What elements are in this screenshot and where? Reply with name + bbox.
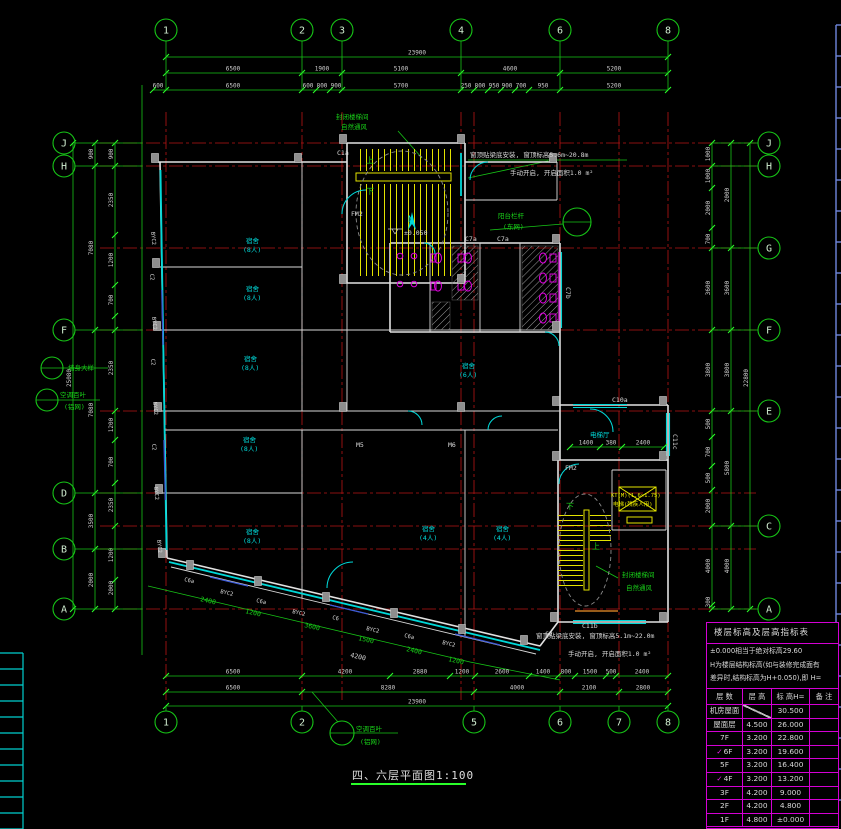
dim-label: 7080 [88,402,95,417]
svg-text:F: F [61,325,67,336]
grid-bubble-F: F [712,319,780,341]
dim-chain: 9002350120070023501200700235012002000 [108,140,118,612]
detail-callout-circle [330,721,354,745]
table-row: ✓6F3.20019.600 [707,746,838,760]
annotation-text: 宿舍 [496,524,510,533]
annotation-text: C2 [545,630,553,638]
col-header-height: 层 高 [743,689,772,705]
annotation-text: C11b [582,622,598,630]
grid-bubble-3: 3 [331,19,353,90]
dim-label: 5100 [394,66,409,73]
dim-label: 2000 [88,572,95,587]
drawing-title: 四、六层平面图 [352,769,436,782]
dim-label: 1200 [455,669,470,676]
table-cell: 3F [707,787,743,801]
annotation-text: (铝网) [64,402,85,411]
column [458,403,465,412]
column [521,636,528,645]
table-cell [743,705,772,719]
grid-bubble-J: J [712,132,780,154]
grid-bubble-6: 6 [549,706,571,733]
dim-label: 300 [705,596,712,607]
table-row: ✓4F3.20013.200 [707,773,838,787]
grid-bubble-6: 6 [549,19,571,90]
elevation-table: 楼层标高及层高指标表 ±0.000相当于绝对标高29.60 H为楼层结构标高(如… [706,622,839,829]
dim-label: 600 [303,83,314,90]
annotation-text: 封闭楼梯间 [622,570,655,579]
dim-label: 7080 [88,240,95,255]
dim-label: 4200 [338,669,353,676]
dim-label: 1000 [705,146,712,161]
dim-label: 6500 [226,669,241,676]
annotation-text: C2 [149,359,156,366]
note-line: H为楼层结构标高(如与装修完成面有 [710,659,838,673]
dim-chain: 23900 [163,50,671,61]
table-cell: 3.200 [743,773,772,787]
dim-label: 950 [538,83,549,90]
svg-text:6: 6 [557,25,563,36]
annotation-text: ±0.050 [404,229,428,237]
annotation-text: C2 [148,274,155,281]
annotation-text: (东网) [503,222,524,231]
stair-top [356,149,451,276]
grid-bubble-H: H [53,155,142,177]
table-row: 1F4.800±0.000 [707,814,838,828]
grid-bubble-H: H [712,155,780,177]
annotation-text: 自然通风 [626,583,653,592]
dim-label: 250 [461,83,472,90]
column [458,135,465,144]
annotation-text: 封闭楼梯间 [336,112,369,121]
column [323,593,330,602]
col-header-floor: 层 数 [707,689,743,705]
grid-bubble-1: 1 [155,706,177,733]
annotation-text: 1500 [358,634,375,645]
dim-label: 800 [317,83,328,90]
dim-label: 8280 [381,685,396,692]
table-row: 2F4.2004.800 [707,800,838,814]
dim-label: 2400 [635,669,650,676]
annotation-text: 阳台栏杆 [498,211,525,220]
detail-callout-circle [41,357,63,379]
annotation-text: 手动开启, 开启面积1.0 m² [568,649,651,658]
detail-callout-circle [36,389,58,411]
annotation-text: (8人) [241,364,259,372]
column [660,397,667,406]
table-cell: 16.400 [772,759,810,773]
table-cell: 4.200 [743,800,772,814]
dim-label: 5200 [607,66,622,73]
annotation-text: (铝网) [360,737,381,746]
table-cell: 5F [707,759,743,773]
dim-label: 6500 [226,685,241,692]
svg-text:5: 5 [471,717,477,728]
grid-bubble-7: 7 [608,706,630,733]
grid-bubble-D: D [53,482,142,504]
annotation-text: 下 [366,187,374,196]
table-cell: 4.800 [772,800,810,814]
annotation-text: M5 [356,441,364,449]
dim-label: 3500 [88,513,95,528]
annotation-text: 宿舍 [462,361,476,370]
dim-label: 380 [606,440,617,447]
drawing-scale: 1:100 [436,769,474,782]
annotation-text: C11c [671,434,679,450]
svg-text:6: 6 [557,717,563,728]
dim-label: 1900 [315,66,330,73]
column [391,609,398,618]
annotation-text: C7a [497,235,509,243]
svg-text:A: A [61,604,67,615]
annotation-text: (8人) [243,246,261,254]
table-cell: 4.800 [743,814,772,828]
detail-callout-circle [563,208,591,236]
annotation-text: 空调百叶 [60,390,87,399]
annotation-text: 3600 [304,621,321,632]
dim-label: 1200 [108,547,115,562]
table-cell: ✓4F [707,773,743,787]
dim-label: 900 [331,83,342,90]
dim-chain: 14003802400 [567,440,667,451]
dim-label: 800 [475,83,486,90]
svg-text:1: 1 [163,25,169,36]
table-cell: 机房屋面 [707,705,743,719]
grid-bubble-A: A [712,598,780,620]
dim-label: 2000 [108,580,115,595]
table-cell: 4.200 [743,787,772,801]
dim-label: 2100 [582,685,597,692]
column [660,452,667,461]
table-cell: 13.200 [772,773,810,787]
svg-text:D: D [61,488,67,499]
table-cell: 26.000 [772,719,810,733]
grid-bubble-2: 2 [291,706,313,733]
annotation-text: 4200 [350,651,367,662]
dim-chain: 20003600380058004000 [724,140,734,612]
table-cell: 3.200 [743,746,772,760]
svg-text:2: 2 [299,25,305,36]
dim-label: 2350 [108,192,115,207]
dim-label: 3800 [705,362,712,377]
annotation-text: 空调百叶 [356,724,383,733]
dim-label: 23900 [408,699,426,706]
annotation-text: 上 [366,156,374,165]
column [255,577,262,586]
annotation-text: C2 [150,444,157,451]
annotation-text: 宿舍 [246,527,260,536]
annotation-text: 宿舍 [244,354,258,363]
annotation-text: (8人) [243,537,261,545]
annotation-text: 宿舍 [246,284,260,293]
grid-bubble-E: E [712,400,780,422]
elevation-table-title: 楼层标高及层高指标表 [707,623,838,644]
check-icon: ✓ [716,747,722,756]
dim-label: 2400 [636,440,651,447]
dim-chain: 65001900510046005200 [163,66,671,77]
svg-text:B: B [61,544,67,555]
dim-label: 2600 [495,669,510,676]
dim-label: 4000 [705,558,712,573]
table-row: 5F3.20016.400 [707,759,838,773]
dim-label: 2000 [705,200,712,215]
elevation-table-body: 机房屋面30.500屋面层4.50026.0007F3.20022.800✓6F… [707,705,838,827]
dim-label: 1200 [108,417,115,432]
dim-label: 5700 [394,83,409,90]
table-cell: 22.800 [772,732,810,746]
dim-label: 3600 [724,280,731,295]
dim-label: 1400 [579,440,594,447]
grid-bubble-A: A [53,598,142,620]
annotation-text: 2400 [406,645,423,656]
svg-text:A: A [766,604,772,615]
col-header-elev: 标 高H= [772,689,810,705]
svg-text:4: 4 [458,25,464,36]
annotation-text: BYC2 [292,609,306,618]
annotation-text: BYC2 [442,640,456,649]
annotation-text: 电梯(残疾人用) [613,500,653,508]
annotation-text: C6 [332,615,340,622]
dim-label: 1000 [705,168,712,183]
dim-label: 900 [108,148,115,159]
cad-viewport: 2390065001900510046005200600650060080090… [0,0,841,829]
svg-text:J: J [766,138,772,149]
grid-bubble-B: B [53,538,142,560]
dim-label: 4600 [503,66,518,73]
table-cell: 9.000 [772,787,810,801]
annotation-text: 宿舍 [246,236,260,245]
annotation-text: 窗顶贴梁底安装, 窗顶标高5.6m~20.8m [470,150,589,159]
grid-bubble-F: F [53,319,142,341]
annotation-text: 墙身大样 [68,363,95,372]
dim-label: 1200 [108,252,115,267]
table-row: 机房屋面30.500 [707,705,838,719]
annotation-text: C6a [256,598,267,606]
table-cell [810,773,838,787]
table-cell [810,746,838,760]
grid-bubble-8: 8 [657,19,679,90]
column [153,259,160,268]
annotation-text: N [408,215,413,225]
dim-label: 22800 [743,369,750,387]
annotation-text: C1a [337,149,349,157]
dim-label: 500 [606,669,617,676]
dim-label: 2000 [724,187,731,202]
svg-text:G: G [766,243,772,254]
annotation-text: KT(M)(1.6×1.75) [611,493,661,499]
grid-bubble-1: 1 [155,19,177,90]
dim-label: 4000 [724,558,731,573]
annotation-text: 下 [566,502,574,511]
table-row: 7F3.20022.800 [707,732,838,746]
dim-chain: 9007080708035002000 [88,140,98,612]
dim-label: 1400 [536,669,551,676]
annotation-text: 自然通风 [341,122,368,131]
svg-text:H: H [61,161,67,172]
note-line: 差异时,结构标高为H+0.050),即 H= [710,672,838,686]
dim-label: 6500 [226,66,241,73]
table-row: 3F4.2009.000 [707,787,838,801]
annotation-text: (4人) [419,534,437,542]
dim-label: 700 [108,294,115,305]
dim-chain: 23900 [163,699,671,710]
dim-label: 950 [489,83,500,90]
table-cell [810,800,838,814]
check-icon: ✓ [716,774,722,783]
dim-chain: 65004200288012002600140080015005002400 [163,669,671,680]
table-cell: ±0.000 [772,814,810,828]
annotation-text: 电梯厅 [590,430,610,439]
annotation-text: BYC2 [220,589,234,598]
grid-bubble-2: 2 [291,19,313,90]
detail-callouts [36,208,591,745]
dim-label: 500 [705,472,712,483]
grid-bubble-5: 5 [463,706,485,733]
dim-label: 4000 [510,685,525,692]
table-cell [810,759,838,773]
annotation-text: (8人) [243,294,261,302]
table-cell: 30.500 [772,705,810,719]
annotation-text: C7b [564,287,572,299]
svg-text:F: F [766,325,772,336]
column [459,625,466,634]
annotation-text: FM2 [565,464,577,472]
annotation-text: FM2 [351,210,363,218]
svg-text:7: 7 [616,717,622,728]
col-header-remark: 备 注 [810,689,838,705]
dim-label: 700 [108,456,115,467]
annotation-text: C6a [404,633,415,641]
bottom-left-ladder [0,653,23,829]
dim-label: 3800 [724,362,731,377]
annotation-text: C7a [465,235,477,243]
annotation-text: 2400 [200,595,217,606]
dim-chain: 1000100020007003600380050070050020004000… [705,140,715,612]
table-cell [810,732,838,746]
table-cell: 19.600 [772,746,810,760]
annotation-text: 1200 [448,655,465,666]
annotation-text: BYC2 [150,317,157,331]
annotation-text: C6a [184,577,195,585]
dim-label: 5200 [607,83,622,90]
annotation-text: (8人) [240,445,258,453]
note-line: ±0.000相当于绝对标高29.60 [710,645,838,659]
svg-text:2: 2 [299,717,305,728]
dim-label: 1500 [583,669,598,676]
annotation-text: BYC2 [366,626,380,635]
column [553,235,560,244]
annotation-text: BYC2 [155,540,162,554]
table-cell: 2F [707,800,743,814]
dim-label: 600 [153,83,164,90]
dim-label: 500 [705,418,712,429]
column [458,275,465,284]
column [340,135,347,144]
annotation-text: 宿舍 [422,524,436,533]
dim-label: 700 [516,83,527,90]
svg-text:J: J [61,138,67,149]
dim-label: 900 [502,83,513,90]
svg-text:8: 8 [665,25,671,36]
column [187,561,194,570]
annotation-text: M6 [448,441,456,449]
table-cell [810,719,838,733]
dim-label: 2350 [108,497,115,512]
svg-text:H: H [766,161,772,172]
grid-bubble-C: C [712,515,780,537]
grid-bubble-4: 4 [450,19,472,90]
table-cell: 3.200 [743,759,772,773]
table-cell: 3.200 [743,732,772,746]
dim-label: 2350 [108,360,115,375]
elevation-table-notes: ±0.000相当于绝对标高29.60 H为楼层结构标高(如与装修完成面有 差异时… [707,644,838,689]
dim-label: 700 [705,446,712,457]
grid-bubble-G: G [712,237,780,259]
column [660,613,667,622]
annotation-text: BYC2 [149,232,156,246]
annotation-text: 上 [592,542,600,551]
dim-label: 800 [561,669,572,676]
dim-label: 2880 [413,669,428,676]
column [295,154,302,163]
column [553,397,560,406]
dim-label: 3600 [705,280,712,295]
grid-bubble-8: 8 [657,706,679,733]
elevation-table-header: 层 数 层 高 标 高H= 备 注 [707,689,838,705]
grid-bubble-J: J [53,132,142,154]
dim-label: 2000 [705,498,712,513]
svg-text:1: 1 [163,717,169,728]
annotation-text: 窗顶贴梁底安装, 窗顶标高5.1m~22.0m [536,631,655,640]
table-cell: 屋面层 [707,719,743,733]
svg-text:E: E [766,406,772,417]
table-cell: ✓6F [707,746,743,760]
column [553,452,560,461]
dim-chain: 65008280400021002800 [163,685,671,696]
dim-label: 23900 [408,50,426,57]
column [340,403,347,412]
column [553,322,560,331]
svg-text:8: 8 [665,717,671,728]
annotation-text: BYC2 [151,402,158,416]
dim-label: 6500 [226,83,241,90]
annotation-text: 手动开启, 开启面积1.0 m² [510,168,593,177]
annotation-text: (4人) [493,534,511,542]
table-row: 屋面层4.50026.000 [707,719,838,733]
annotation-text: 宿舍 [243,435,257,444]
title-block: 四、六层平面图 1:100 [351,769,474,784]
svg-text:C: C [766,521,772,532]
column [152,154,159,163]
annotation-text: (6人) [459,371,477,379]
dim-chain: 22800 [743,140,753,612]
table-cell: 1F [707,814,743,828]
table-cell [810,787,838,801]
svg-text:3: 3 [339,25,345,36]
annotation-text: 1200 [245,607,262,618]
dim-label: 900 [88,148,95,159]
table-cell: 4.500 [743,719,772,733]
dimension-chains: 2390065001900510046005200600650060080090… [66,50,753,710]
annotation-text: BYC2 [152,487,159,501]
table-cell [810,814,838,828]
dim-label: 700 [705,233,712,244]
table-cell [810,705,838,719]
dim-label: 5800 [724,460,731,475]
column [340,275,347,284]
dim-chain: 6006500600800900570025080095090070095052… [150,83,671,94]
dim-label: 2800 [636,685,651,692]
column [551,613,558,622]
